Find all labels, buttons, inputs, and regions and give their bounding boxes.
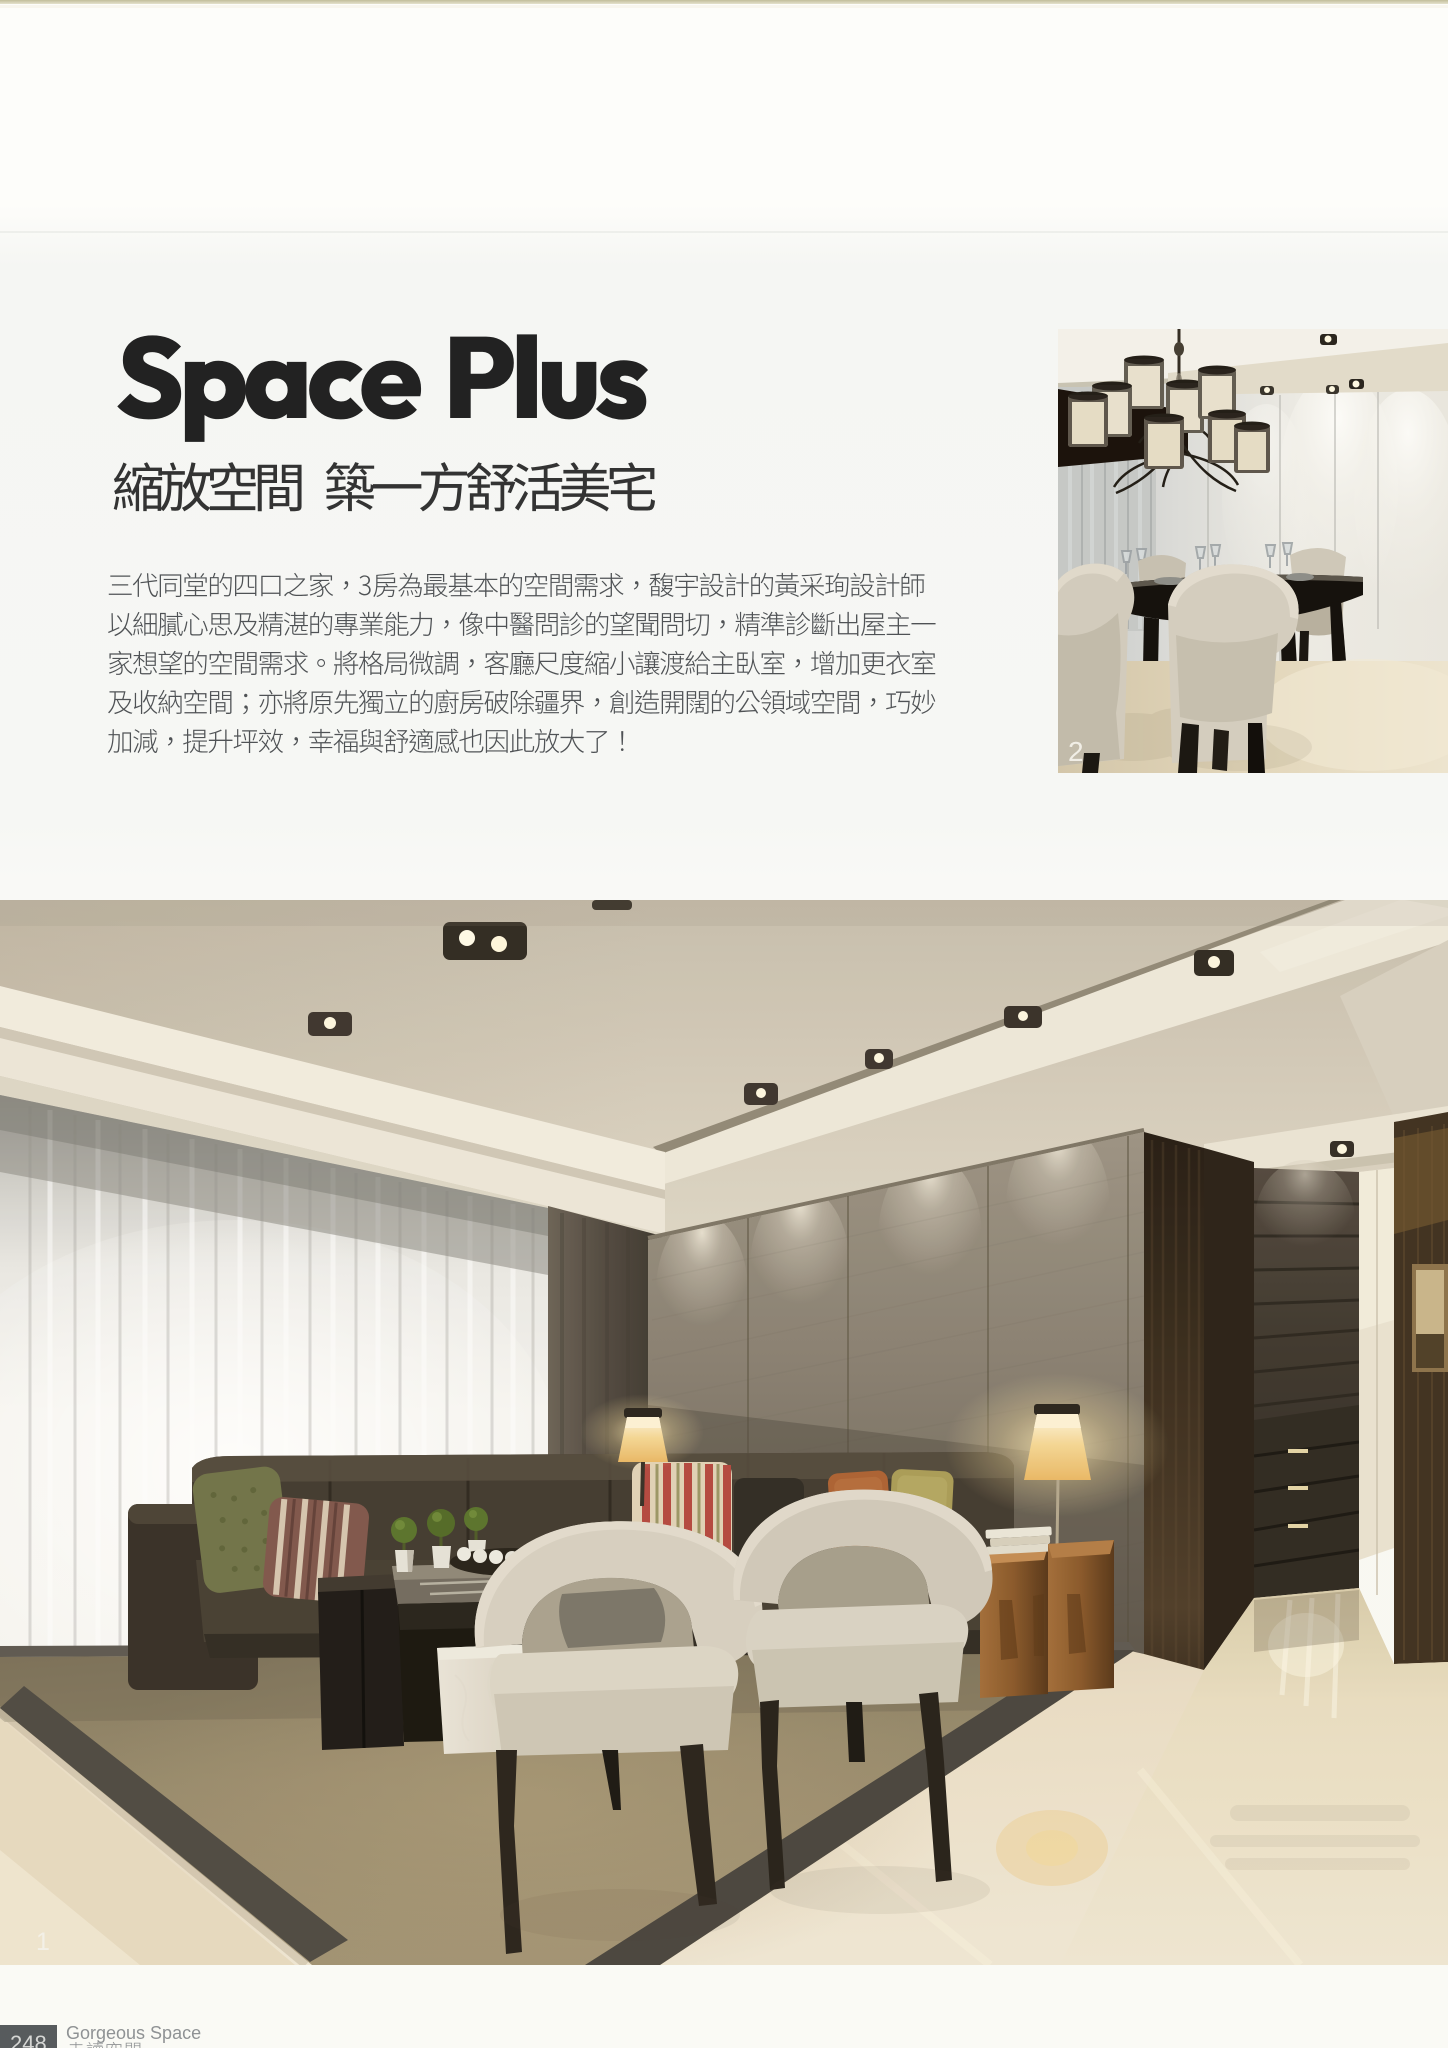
svg-text:2: 2 [1068,736,1084,767]
svg-text:1: 1 [36,1928,50,1956]
